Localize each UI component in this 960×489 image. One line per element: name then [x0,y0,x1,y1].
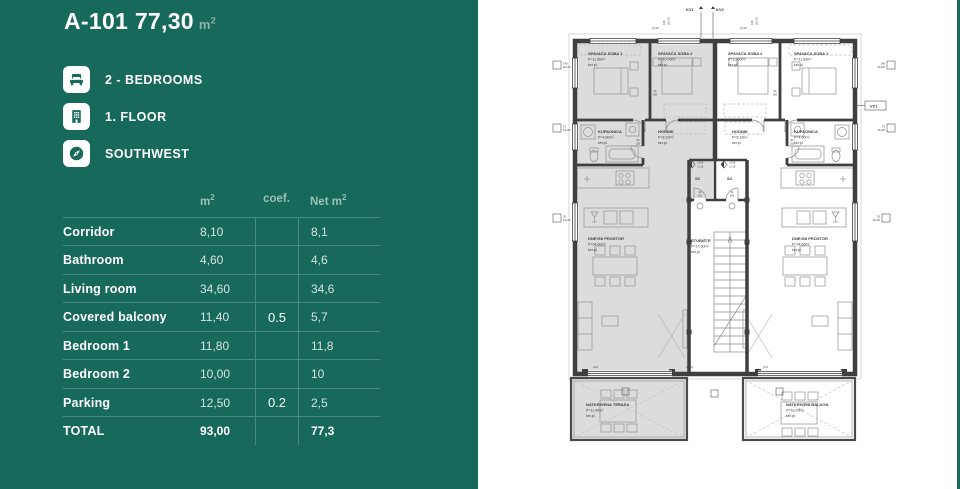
svg-text:10+20: 10+20 [872,218,880,222]
room-label: KUPAONICA [598,129,622,134]
room-label: NATKRIVENA TERASA [586,402,629,407]
header-room [63,193,198,208]
svg-text:ker.pl.: ker.pl. [588,248,598,252]
svg-text:140: 140 [881,62,886,66]
cell-coef: 0.2 [255,389,298,417]
cell-m2: 4,60 [198,246,255,274]
cell-coef [255,417,298,445]
svg-text:ker.pl.: ker.pl. [786,414,796,418]
svg-text:205: 205 [730,195,735,198]
cell-m2: 12,50 [198,389,255,417]
cell-m2: 93,00 [198,417,255,445]
header-net: Net m2 [298,193,380,208]
table-row: Bedroom 111,8011,8 [63,331,380,360]
compass-icon [63,140,90,167]
svg-text:ker.pl.: ker.pl. [792,248,802,252]
cell-coef [255,360,298,388]
area-table: m2 coef. Net m2 Corridor8,108,1Bathroom4… [63,193,380,445]
svg-text:P=10.00m²: P=10.00m² [658,58,676,62]
building-icon [63,103,90,130]
cell-m2: 8,10 [198,218,255,246]
svg-text:ker.pl.: ker.pl. [728,63,738,67]
table-row: Corridor8,108,1 [63,217,380,246]
cell-label: Bedroom 2 [63,360,198,388]
door-tag-s3: S3 [695,176,701,181]
room-label: SPAVAĆA SOBA 1 [588,51,623,56]
svg-text:P=17.60m²: P=17.60m² [691,245,709,249]
svg-text:+2.18: +2.18 [697,166,704,169]
table-row: Living room34,6034,6 [63,274,380,303]
header-m2: m2 [198,193,255,208]
room-label: SPAVAĆA SOBA 1 [794,51,829,56]
table-row: Covered balcony11,400.55,7 [63,302,380,331]
svg-text:P=8.10m²: P=8.10m² [732,136,748,140]
svg-text:P=4.60m²: P=4.60m² [794,136,810,140]
svg-text:P=34.60m²: P=34.60m² [588,243,606,247]
svg-text:140: 140 [750,20,754,25]
vent-tag-kv1: KV1 [686,7,695,12]
floor-plan: SPAVAĆA SOBA 1 P=11.80m² ker.pl. SPAVAĆA… [548,0,916,460]
svg-text:10+20: 10+20 [877,128,885,132]
svg-text:P=10.00m²: P=10.00m² [728,58,746,62]
svg-text:p=0: p=0 [763,365,768,369]
feature-label: 2 - BEDROOMS [105,73,203,87]
svg-text:+2.18: +2.18 [729,166,736,169]
vent-tag-vz1: VZ1 [870,104,878,109]
table-row: TOTAL93,0077,3 [63,416,380,445]
feature-floor: 1. FLOOR [63,103,203,130]
cell-net: 8,1 [298,218,380,246]
svg-text:30: 30 [563,215,566,219]
svg-text:+2.90: +2.90 [729,162,736,165]
svg-text:P=4.60m²: P=4.60m² [598,136,614,140]
room-label: DNEVNI PROSTOR [588,236,624,241]
svg-text:75: 75 [563,125,566,129]
svg-text:+2.90: +2.90 [697,162,704,165]
svg-text:205: 205 [790,143,795,146]
svg-text:P=11.80m²: P=11.80m² [794,58,812,62]
svg-text:P=11.40m²: P=11.40m² [586,409,604,413]
svg-text:25+20: 25+20 [755,17,759,25]
room-label: KUPAONICA [794,129,818,134]
svg-text:p=10: p=10 [652,26,659,30]
cell-net: 11,8 [298,332,380,360]
area-unit: m2 [199,17,216,32]
apartment-id-area: A-101 77,30 [64,8,194,34]
svg-text:ker.pl.: ker.pl. [658,141,668,145]
table-row: Parking12,500.22,5 [63,388,380,417]
cell-net: 5,7 [298,303,380,331]
room-label: HODNIK [732,129,748,134]
svg-text:ker.pl.: ker.pl. [794,141,804,145]
room-label: DNEVNI PROSTOR [792,236,828,241]
cell-label: TOTAL [63,417,198,445]
svg-text:ker.pl.: ker.pl. [586,414,596,418]
cell-net: 10 [298,360,380,388]
svg-text:p=0: p=0 [593,365,598,369]
cell-m2: 11,40 [198,303,255,331]
vent-tag-kv2: KV2 [716,7,725,12]
area-table-header: m2 coef. Net m2 [63,193,380,217]
feature-bedrooms: 2 - BEDROOMS [63,66,203,93]
room-label: STUBIŠTE [691,238,711,243]
cell-coef [255,218,298,246]
table-row: Bathroom4,604,6 [63,245,380,274]
cell-label: Bathroom [63,246,198,274]
cell-label: Parking [63,389,198,417]
area-table-body: Corridor8,108,1Bathroom4,604,6Living roo… [63,217,380,445]
svg-text:140: 140 [662,20,666,25]
page-title: A-101 77,30m2 [64,8,216,35]
svg-text:205: 205 [773,94,778,97]
table-row: Bedroom 210,0010 [63,359,380,388]
svg-text:30: 30 [877,215,880,219]
room-label: HODNIK [658,129,674,134]
svg-text:25+20: 25+20 [667,17,671,25]
cell-label: Covered balcony [63,303,198,331]
cell-net: 34,6 [298,275,380,303]
svg-text:205: 205 [698,195,703,198]
feature-orientation: SOUTHWEST [63,140,203,167]
svg-text:205: 205 [653,94,658,97]
svg-text:P=34.60m²: P=34.60m² [792,243,810,247]
cell-net: 4,6 [298,246,380,274]
svg-text:P=10.70m²: P=10.70m² [786,409,804,413]
svg-text:ker.pl.: ker.pl. [794,63,804,67]
room-label: SPAVAĆA SOBA 2 [728,51,763,56]
svg-text:140: 140 [563,62,568,66]
svg-text:P=11.80m²: P=11.80m² [588,58,606,62]
cell-m2: 34,60 [198,275,255,303]
header-coef: coef. [255,193,298,208]
feature-label: SOUTHWEST [105,147,189,161]
cell-m2: 10,00 [198,360,255,388]
feature-label: 1. FLOOR [105,110,167,124]
svg-text:ker.pl.: ker.pl. [691,250,701,254]
staircase [697,203,746,352]
cell-coef [255,246,298,274]
cell-label: Corridor [63,218,198,246]
bed-icon [63,66,90,93]
cell-net: 2,5 [298,389,380,417]
cell-coef: 0.5 [255,303,298,331]
svg-text:ker.pl.: ker.pl. [658,63,668,67]
feature-list: 2 - BEDROOMS 1. FLOOR SOUTHWEST [63,66,203,177]
cell-coef [255,275,298,303]
svg-text:10+20: 10+20 [563,128,571,132]
svg-text:ker.pl.: ker.pl. [588,63,598,67]
cell-label: Living room [63,275,198,303]
room-label: NATKRIVENI BALKON [786,402,828,407]
cell-net: 77,3 [298,417,380,445]
svg-text:20+25: 20+25 [877,65,885,69]
room-label: SPAVAĆA SOBA 2 [658,51,693,56]
svg-text:ker.pl.: ker.pl. [598,141,608,145]
cell-label: Bedroom 1 [63,332,198,360]
svg-text:P=8.10m²: P=8.10m² [658,136,674,140]
apartment-info-panel: A-101 77,30m2 2 - BEDROOMS 1. FLOOR SOUT… [0,0,478,489]
cell-coef [255,332,298,360]
svg-text:205: 205 [636,143,641,146]
cell-m2: 11,80 [198,332,255,360]
svg-text:ker.pl.: ker.pl. [732,141,742,145]
svg-text:20+25: 20+25 [563,65,571,69]
door-tag-s4: S4 [727,176,733,181]
svg-text:p=10: p=10 [686,365,693,369]
svg-text:10+20: 10+20 [563,218,571,222]
svg-text:p=10: p=10 [740,26,747,30]
svg-text:75: 75 [882,125,885,129]
